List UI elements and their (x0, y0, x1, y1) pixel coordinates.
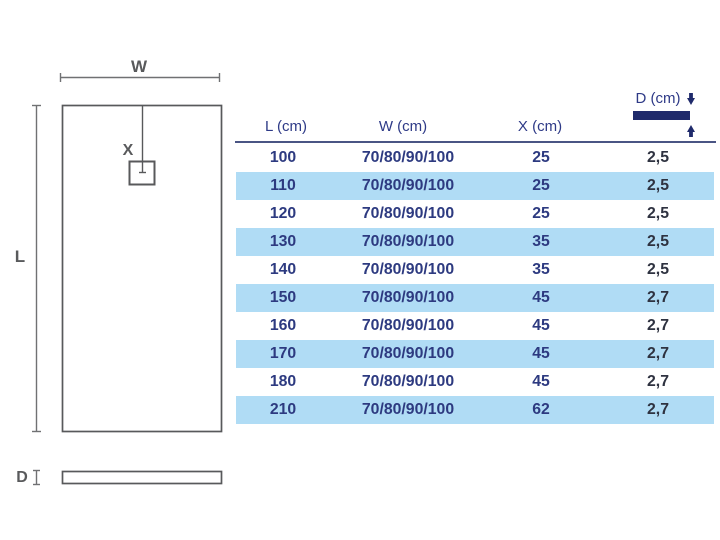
svg-text:L: L (15, 247, 25, 266)
svg-text:D: D (16, 469, 28, 486)
svg-text:X: X (123, 142, 134, 159)
svg-text:W: W (131, 57, 148, 76)
